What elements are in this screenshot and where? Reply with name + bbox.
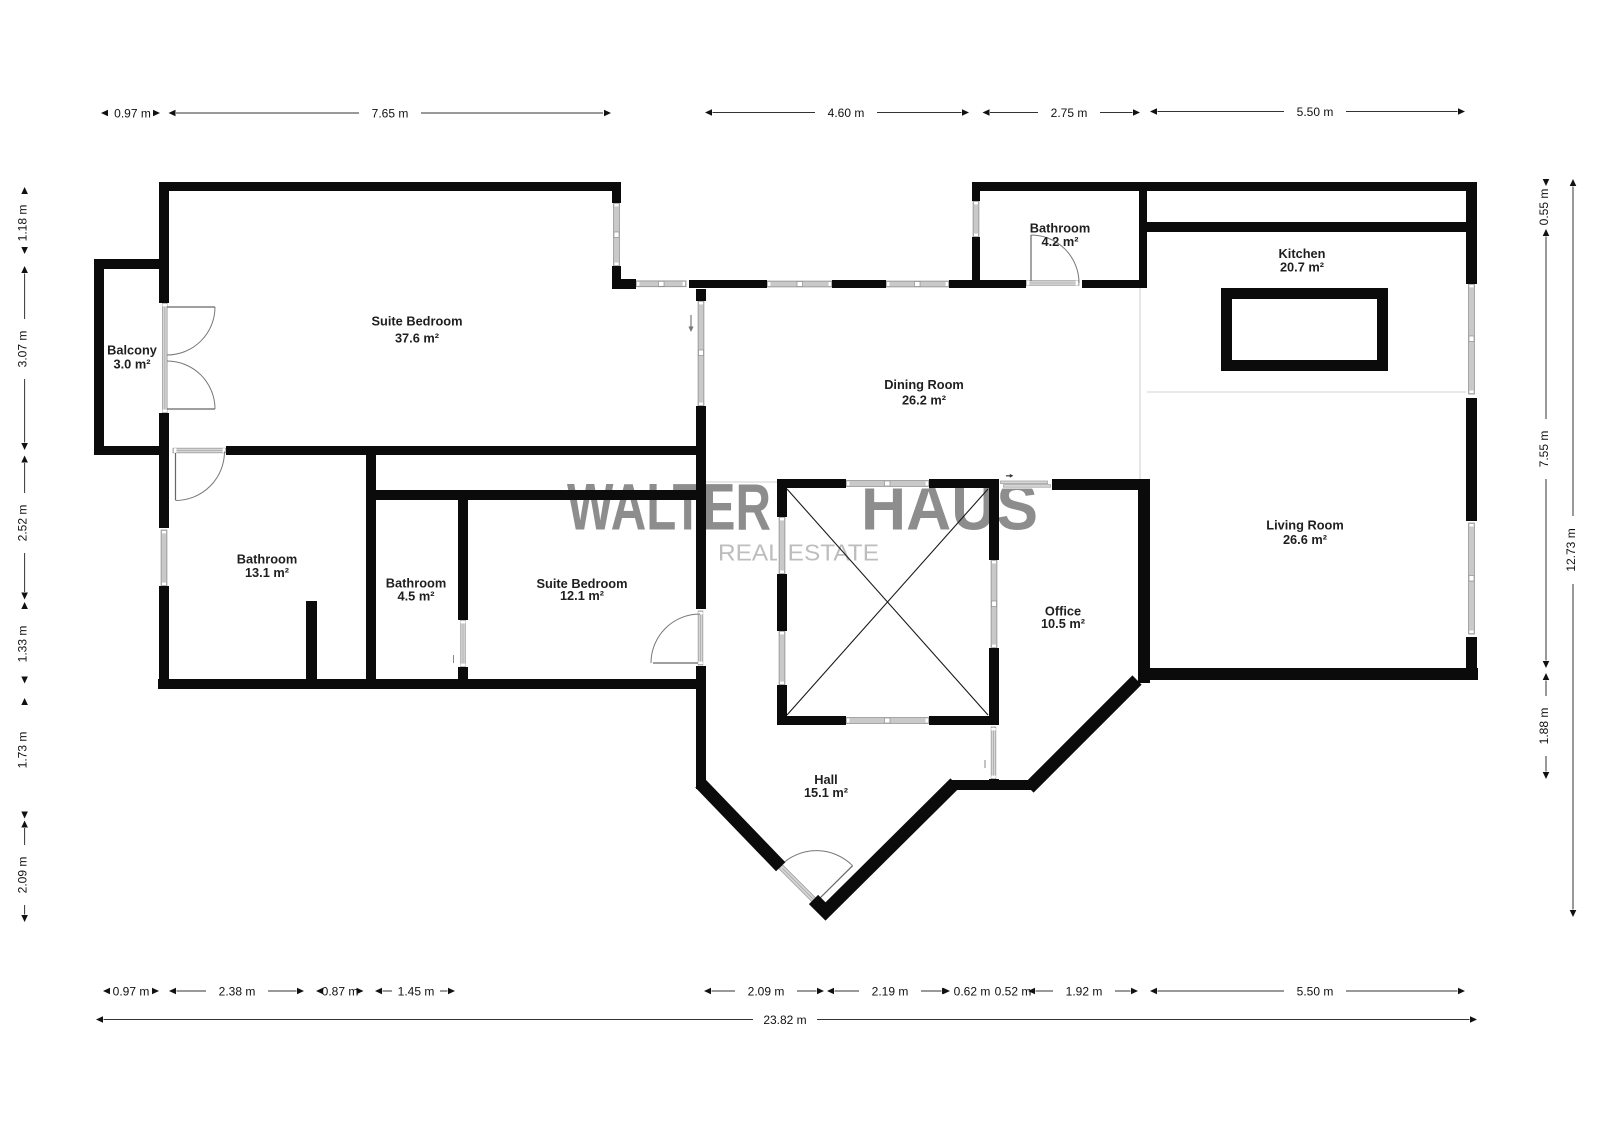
svg-text:10.5 m²: 10.5 m²	[1041, 616, 1085, 631]
svg-text:0.55 m: 0.55 m	[1537, 189, 1551, 226]
svg-text:2.19 m: 2.19 m	[872, 985, 909, 999]
svg-text:2.38 m: 2.38 m	[219, 985, 256, 999]
svg-text:4.2 m²: 4.2 m²	[1042, 234, 1079, 249]
svg-text:2.52 m: 2.52 m	[16, 505, 30, 542]
svg-text:1.18 m: 1.18 m	[16, 205, 30, 242]
svg-text:3.0 m²: 3.0 m²	[114, 357, 151, 372]
svg-text:0.52 m: 0.52 m	[995, 985, 1032, 999]
svg-text:1.73 m: 1.73 m	[16, 732, 30, 769]
svg-text:1.88 m: 1.88 m	[1537, 708, 1551, 745]
svg-text:3.07 m: 3.07 m	[16, 331, 30, 368]
svg-text:12.1 m²: 12.1 m²	[560, 588, 604, 603]
svg-text:15.1 m²: 15.1 m²	[804, 785, 848, 800]
svg-text:1.92 m: 1.92 m	[1066, 985, 1103, 999]
svg-text:1.45 m: 1.45 m	[398, 985, 435, 999]
svg-text:13.1 m²: 13.1 m²	[245, 565, 289, 580]
svg-text:5.50 m: 5.50 m	[1297, 105, 1334, 119]
svg-text:20.7 m²: 20.7 m²	[1280, 260, 1324, 275]
svg-text:Suite Bedroom: Suite Bedroom	[371, 314, 462, 329]
svg-text:4.5 m²: 4.5 m²	[398, 589, 435, 604]
svg-text:12.73 m: 12.73 m	[1564, 528, 1578, 571]
svg-text:0.87 m: 0.87 m	[322, 985, 359, 999]
svg-text:0.97 m: 0.97 m	[113, 985, 150, 999]
svg-text:5.50 m: 5.50 m	[1297, 985, 1334, 999]
svg-text:26.6 m²: 26.6 m²	[1283, 532, 1327, 547]
svg-text:REAL ESTATE: REAL ESTATE	[718, 540, 879, 566]
svg-text:2.09 m: 2.09 m	[16, 857, 30, 894]
svg-text:Dining Room: Dining Room	[884, 377, 964, 392]
svg-text:23.82 m: 23.82 m	[763, 1013, 806, 1027]
svg-text:0.97 m: 0.97 m	[114, 107, 151, 121]
svg-text:7.65 m: 7.65 m	[372, 107, 409, 121]
svg-text:1.33 m: 1.33 m	[16, 626, 30, 663]
svg-text:37.6 m²: 37.6 m²	[395, 331, 439, 346]
svg-text:4.60 m: 4.60 m	[828, 106, 865, 120]
svg-text:WALTER: WALTER	[567, 470, 771, 544]
svg-text:26.2 m²: 26.2 m²	[902, 393, 946, 408]
svg-text:0.62 m: 0.62 m	[954, 985, 991, 999]
svg-text:7.55 m: 7.55 m	[1537, 431, 1551, 468]
svg-text:Balcony: Balcony	[107, 343, 158, 358]
svg-text:2.09 m: 2.09 m	[748, 985, 785, 999]
svg-text:Living Room: Living Room	[1266, 518, 1344, 533]
svg-text:2.75 m: 2.75 m	[1051, 106, 1088, 120]
